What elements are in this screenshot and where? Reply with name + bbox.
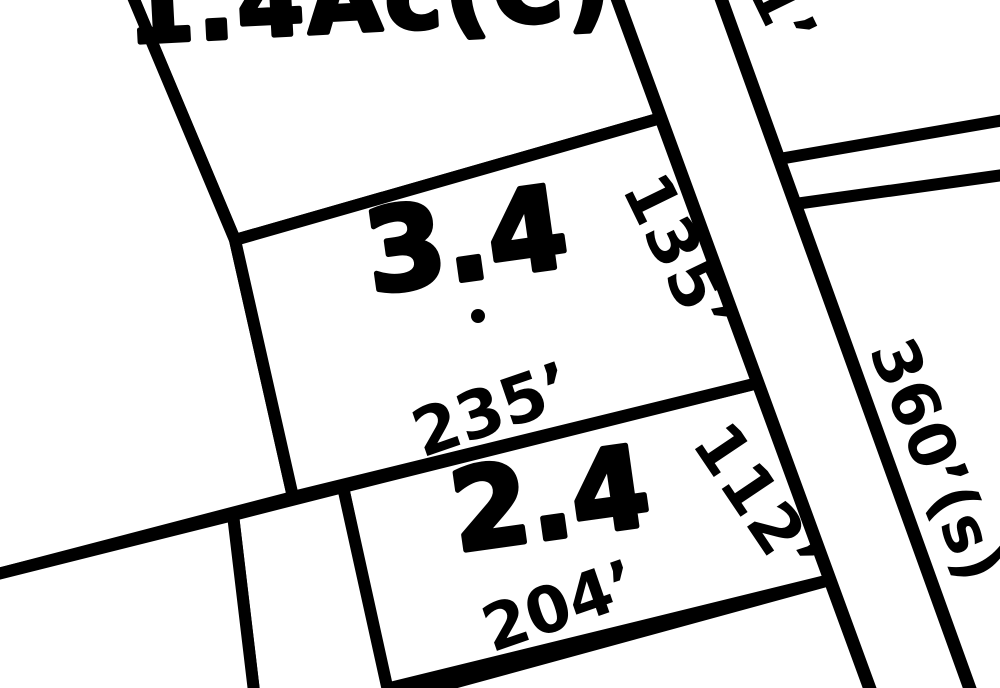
parcel-highlighted-label: 3.4 [357,160,575,320]
map-canvas[interactable]: 1.4Ac(C) 3.4 2.4 235’ 135’ 112’ 204’ 360… [0,0,1000,688]
parcel-center-dot [471,309,485,323]
parcel-map-viewport: 1.4Ac(C) 3.4 2.4 235’ 135’ 112’ 204’ 360… [0,0,1000,688]
